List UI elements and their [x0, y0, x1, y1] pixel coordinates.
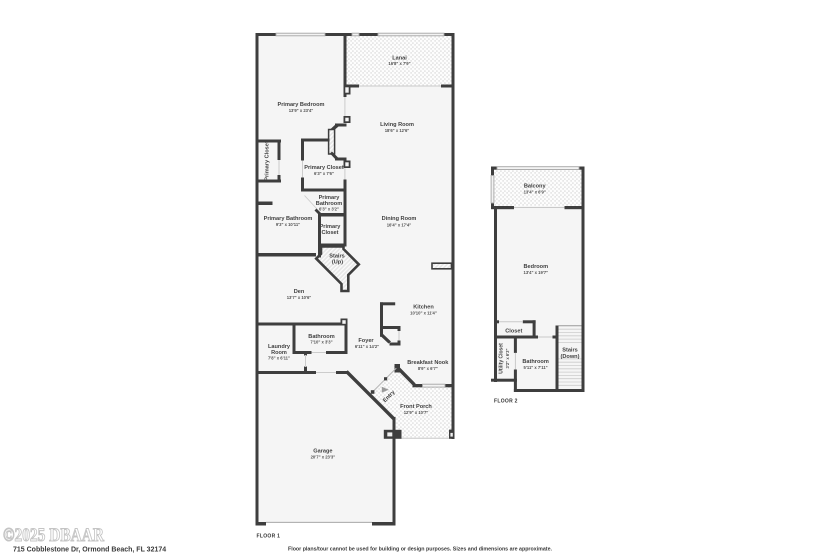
svg-text:3'2" x 6'3": 3'2" x 6'3" — [505, 349, 510, 369]
svg-text:9'3" x 10'11": 9'3" x 10'11" — [276, 222, 300, 227]
svg-text:13'4" x 19'7": 13'4" x 19'7" — [524, 270, 549, 275]
svg-text:Dining Room: Dining Room — [382, 216, 417, 222]
svg-text:12'9" x 10'7": 12'9" x 10'7" — [404, 410, 429, 415]
svg-text:FLOOR 2: FLOOR 2 — [494, 399, 518, 405]
svg-text:16'8" x 7'9": 16'8" x 7'9" — [388, 61, 410, 66]
svg-text:(Down): (Down) — [561, 354, 580, 360]
svg-text:(Up): (Up) — [332, 260, 343, 266]
svg-text:20'7" x 23'3": 20'7" x 23'3" — [311, 455, 336, 460]
svg-text:18'6" x 12'6": 18'6" x 12'6" — [385, 128, 410, 133]
svg-text:Closet: Closet — [505, 329, 522, 335]
svg-text:8'9" x 6'7": 8'9" x 6'7" — [418, 366, 438, 371]
svg-text:Stairs: Stairs — [562, 348, 578, 354]
svg-text:Primary Closet: Primary Closet — [265, 141, 271, 181]
svg-text:Utility Closet: Utility Closet — [499, 343, 505, 374]
svg-text:6'3" x 7'6": 6'3" x 7'6" — [314, 171, 334, 176]
svg-text:7'8" x 6'11": 7'8" x 6'11" — [268, 356, 290, 361]
svg-text:Closet: Closet — [321, 230, 338, 236]
svg-text:©2025 DBAAR: ©2025 DBAAR — [3, 525, 104, 546]
svg-text:715 Cobblestone Dr, Ormond Bea: 715 Cobblestone Dr, Ormond Beach, FL 321… — [13, 547, 166, 554]
svg-text:13'7" x 10'6": 13'7" x 10'6" — [287, 295, 312, 300]
svg-text:16'4" x 17'4": 16'4" x 17'4" — [387, 223, 412, 228]
svg-text:6'3" x 3'2": 6'3" x 3'2" — [319, 207, 339, 212]
svg-text:5'11" x 7'11": 5'11" x 7'11" — [524, 365, 548, 370]
svg-text:10'10" x 11'4": 10'10" x 11'4" — [410, 311, 437, 316]
svg-text:Floor plans/tour cannot be use: Floor plans/tour cannot be used for buil… — [288, 546, 553, 552]
svg-text:FLOOR 1: FLOOR 1 — [257, 534, 281, 540]
svg-text:13'9" x 23'4": 13'9" x 23'4" — [289, 108, 314, 113]
svg-text:7'10" x 3'3": 7'10" x 3'3" — [310, 340, 332, 345]
svg-text:6'11" x 14'2": 6'11" x 14'2" — [355, 344, 379, 349]
svg-text:13'4" x 6'9": 13'4" x 6'9" — [524, 189, 546, 194]
